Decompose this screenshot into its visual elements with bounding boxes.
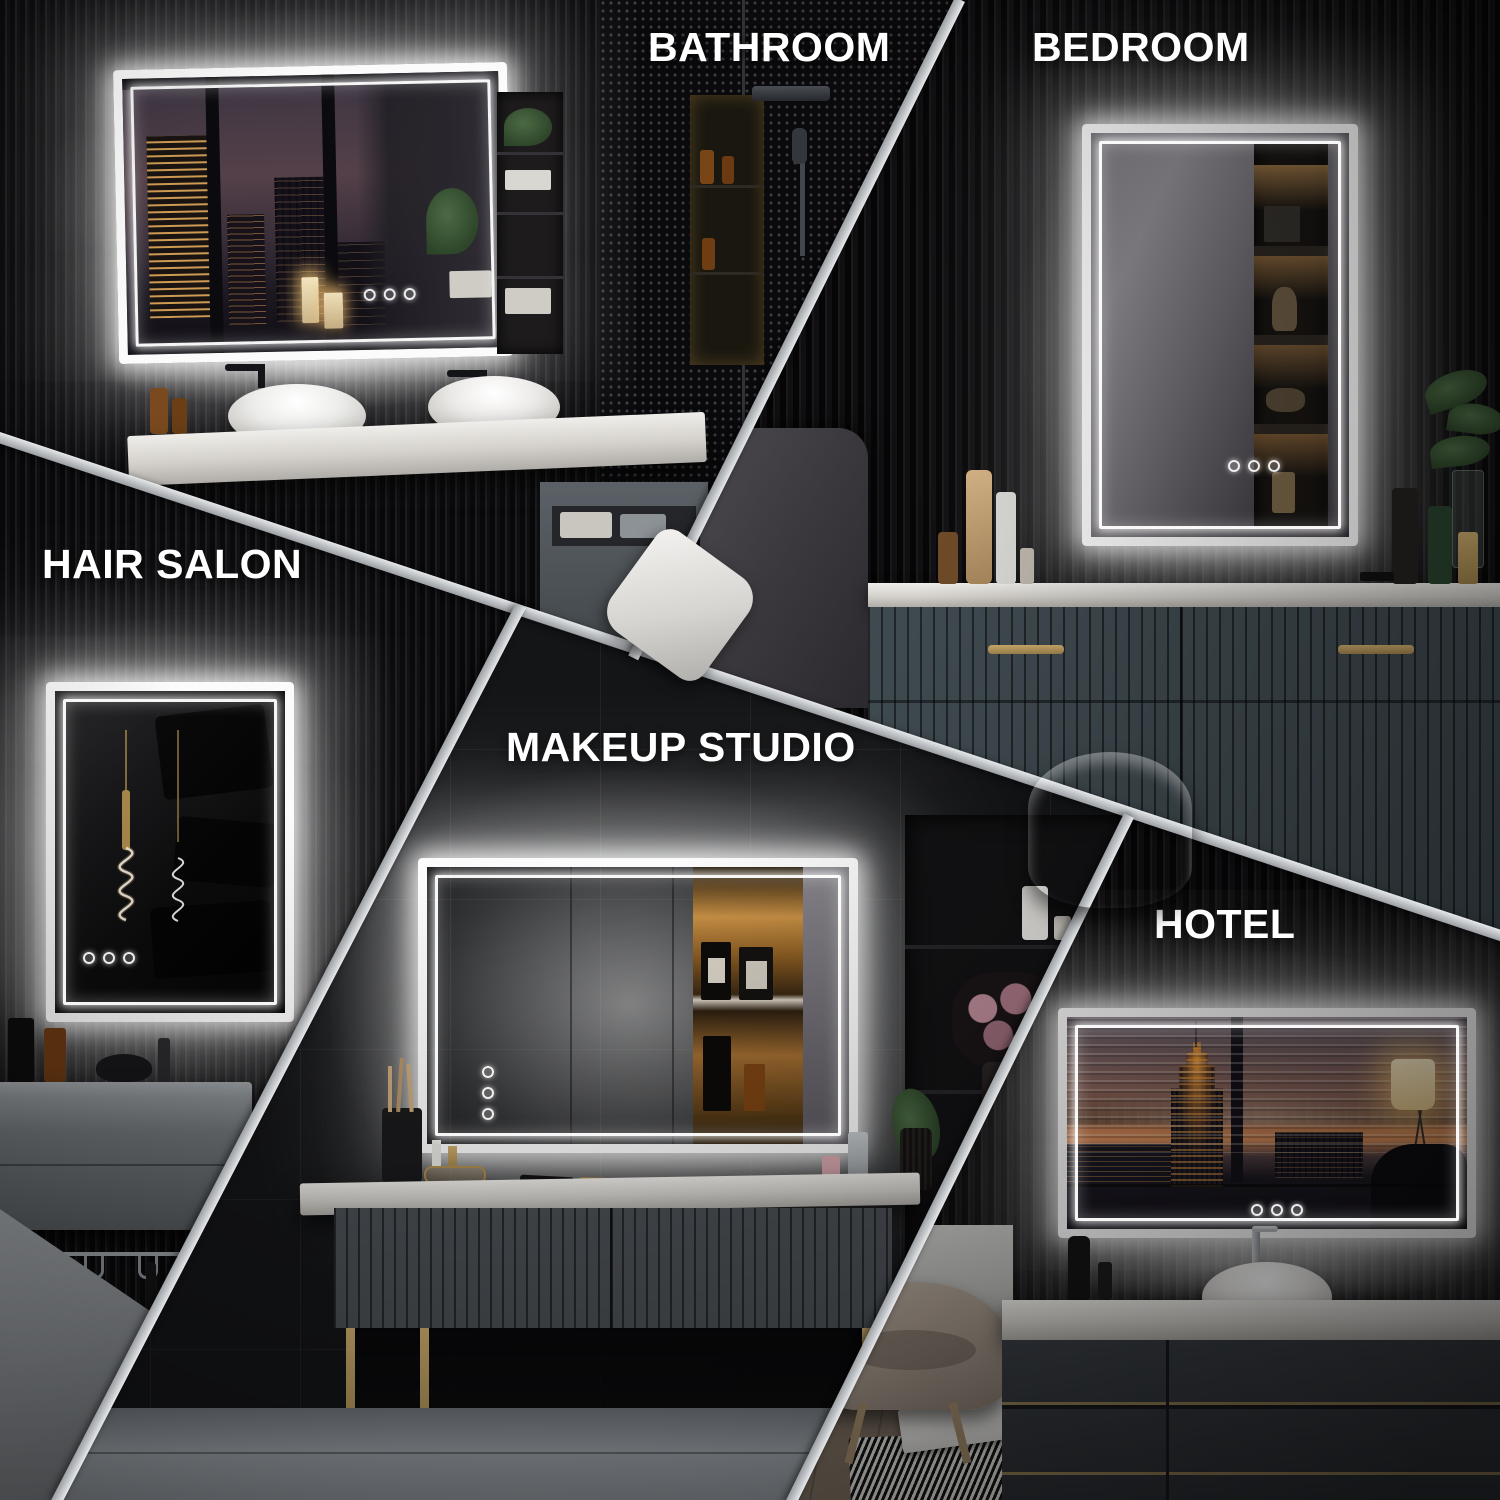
reed-diffuser — [1392, 488, 1418, 584]
shelf-item — [1272, 472, 1295, 512]
hotel-faucet-spout — [1252, 1226, 1278, 1232]
cosmetic-bottle — [1020, 548, 1034, 584]
led-mirror-bathroom — [113, 62, 513, 364]
panel-seam — [672, 867, 674, 1144]
soap-bottle — [172, 398, 187, 434]
touch-button-icon — [1228, 460, 1240, 472]
touch-button-icon — [1248, 460, 1260, 472]
white-tube — [1022, 886, 1048, 940]
shelf-towel — [505, 170, 551, 190]
niche-bottle-label — [746, 961, 767, 989]
brush-cup — [382, 1108, 422, 1182]
makeup-brush — [406, 1064, 413, 1112]
touch-button-icon — [403, 288, 415, 300]
cosmetic-bottle — [966, 470, 992, 584]
led-mirror-hotel — [1058, 1008, 1476, 1238]
candle — [301, 276, 319, 323]
touch-button-icon — [1268, 460, 1280, 472]
shelf-line — [497, 276, 563, 279]
hotel-counter — [1002, 1300, 1500, 1340]
reflected-towel — [450, 270, 492, 298]
touch-button-icon — [482, 1108, 494, 1120]
niche-shelf-line — [690, 185, 764, 188]
touch-button-icon — [103, 952, 115, 964]
mirror-touch-controls — [1251, 1204, 1303, 1216]
touch-button-icon — [383, 289, 395, 301]
cabinet-seam — [0, 1164, 252, 1166]
salon-bowl — [96, 1054, 152, 1082]
led-mirror-bedroom — [1082, 124, 1358, 546]
shelf-towel — [505, 288, 551, 314]
cabinet-seam — [1166, 1340, 1169, 1500]
mirror-touch-controls — [1228, 460, 1280, 472]
led-mirror-makeup — [418, 858, 858, 1153]
salon-bottle-black — [8, 1018, 34, 1082]
section-label-hair-salon: HAIR SALON — [42, 544, 302, 585]
section-label-bedroom: BEDROOM — [1032, 27, 1250, 68]
plant-leaf — [1429, 433, 1492, 469]
cosmetic-bottle — [938, 532, 958, 584]
shelf-line — [497, 152, 563, 155]
hotel-cabinet — [1002, 1340, 1500, 1500]
mirror-touch-controls — [482, 1066, 494, 1120]
touch-button-icon — [83, 952, 95, 964]
reflected-desk-line — [1067, 1184, 1467, 1187]
amber-bottle — [722, 156, 734, 184]
reflected-tower — [227, 214, 267, 325]
mirror-touch-controls — [363, 288, 415, 301]
section-label-makeup-studio: MAKEUP STUDIO — [506, 727, 856, 768]
drawer-handle — [1338, 645, 1414, 654]
amber-bottle — [702, 238, 715, 270]
touch-button-icon — [1271, 1204, 1283, 1216]
wall-faucet-spout — [258, 364, 265, 388]
touch-button-icon — [123, 952, 135, 964]
dresser-countertop — [868, 583, 1500, 607]
niche-spray-black — [703, 1036, 730, 1111]
cabinet-seam — [1002, 1405, 1500, 1409]
amber-bottle — [700, 150, 714, 184]
counter-bottle — [1068, 1236, 1090, 1300]
folded-towel — [560, 512, 612, 538]
touch-button-icon — [363, 289, 375, 301]
shelf-plant — [504, 108, 552, 146]
floor-seam — [0, 1452, 900, 1454]
touch-button-icon — [1291, 1204, 1303, 1216]
shelf-divider — [1254, 246, 1329, 256]
cosmetic-bottle — [996, 492, 1016, 584]
shelf-divider — [1254, 424, 1329, 434]
shower-niche — [690, 95, 764, 365]
touch-button-icon — [1251, 1204, 1263, 1216]
shelf-line — [497, 212, 563, 215]
spiral-pendant-lights — [78, 730, 218, 950]
salon-tube — [158, 1038, 170, 1082]
drawer-seam — [610, 1208, 613, 1328]
led-mirror-hair-salon — [46, 682, 294, 1022]
shelf-divider — [1254, 335, 1329, 345]
collage-canvas: BATHROOM — [0, 0, 1500, 1500]
salon-bottle-amber — [44, 1028, 66, 1082]
shower-head — [752, 86, 830, 101]
green-glass-bottle — [1428, 506, 1452, 584]
mirror-touch-controls — [83, 952, 135, 964]
makeup-brush — [396, 1058, 404, 1112]
reflected-glass-panel — [803, 867, 849, 1144]
shelf-item — [1266, 388, 1305, 412]
niche-shelf-line — [690, 272, 764, 275]
niche-amber-bottle — [744, 1064, 765, 1111]
reflected-tower — [275, 177, 327, 322]
lipstick — [448, 1146, 457, 1168]
panel-seam — [570, 867, 572, 1144]
touch-button-icon — [482, 1087, 494, 1099]
shelf-item — [1272, 287, 1298, 331]
niche-bottle-label — [708, 958, 725, 983]
cabinet-gold-line — [1002, 1472, 1500, 1475]
desk-drawers — [334, 1208, 892, 1328]
grey-pouf — [1028, 752, 1192, 908]
shelf-item — [1264, 206, 1300, 242]
section-label-bathroom: BATHROOM — [648, 27, 890, 68]
dresser-seam — [868, 700, 1500, 703]
perfume-bottle — [1458, 532, 1478, 584]
floor-lamp-shade — [1391, 1059, 1435, 1110]
lipstick — [432, 1140, 441, 1168]
touch-button-icon — [482, 1066, 494, 1078]
reflected-tower — [146, 135, 214, 318]
drawer-handle — [988, 645, 1064, 654]
tile-floor — [0, 1408, 900, 1500]
spray-bottle — [994, 878, 1014, 940]
counter-bottle — [1098, 1262, 1112, 1300]
section-label-hotel: HOTEL — [1154, 904, 1295, 945]
candle — [324, 292, 344, 328]
remote — [1360, 572, 1394, 581]
soap-bottle — [150, 388, 168, 434]
plant-leaf — [1446, 400, 1500, 438]
hairbrush — [1040, 562, 1129, 583]
handheld-shower — [792, 128, 807, 164]
makeup-brush — [388, 1066, 392, 1112]
